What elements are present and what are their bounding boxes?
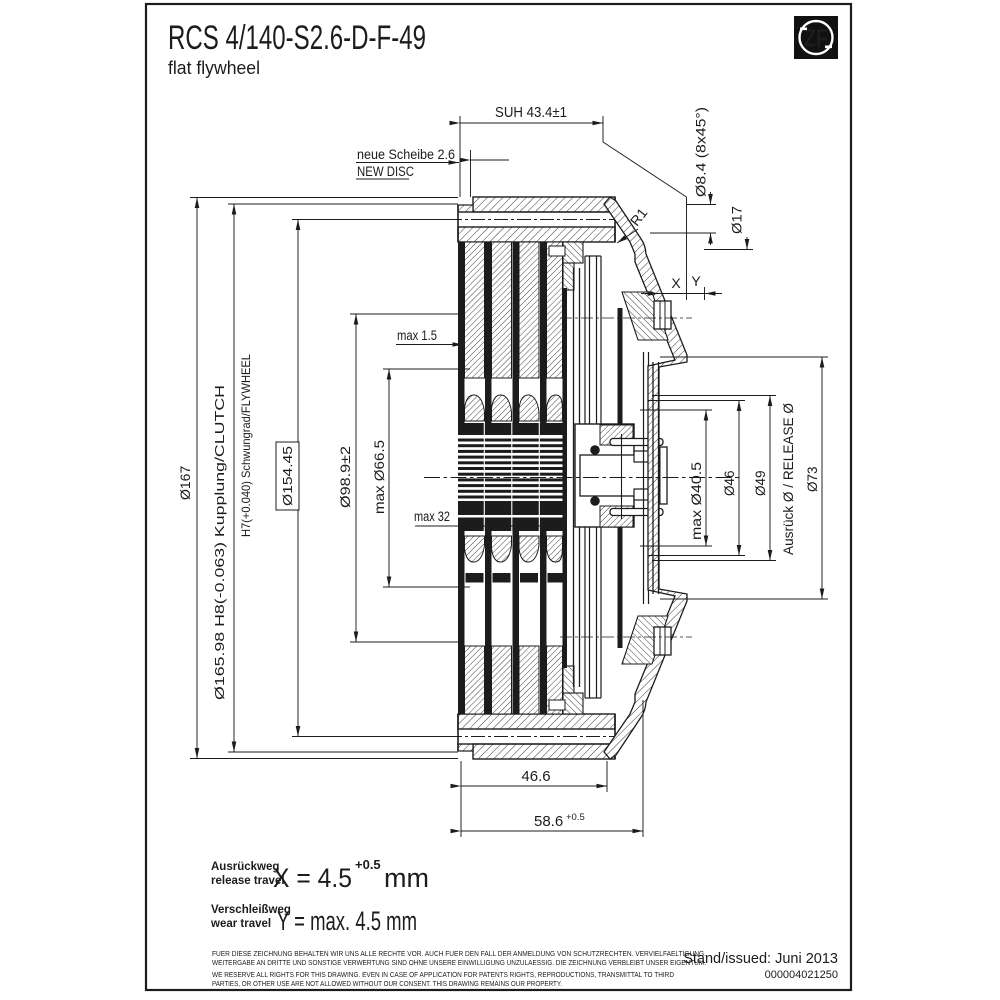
svg-text:X = 4.5: X = 4.5 <box>273 863 352 893</box>
svg-text:SUH 43.4±1: SUH 43.4±1 <box>495 105 567 121</box>
svg-text:Y: Y <box>691 273 701 289</box>
svg-text:flat flywheel: flat flywheel <box>168 58 260 78</box>
svg-text:+0.5: +0.5 <box>566 812 585 823</box>
svg-text:58.6: 58.6 <box>534 813 563 830</box>
svg-text:max 1.5: max 1.5 <box>397 328 437 343</box>
svg-text:WE RESERVE ALL RIGHTS FOR THIS: WE RESERVE ALL RIGHTS FOR THIS DRAWING. … <box>212 970 674 979</box>
svg-text:ZF: ZF <box>804 25 828 53</box>
svg-text:Ø17: Ø17 <box>729 206 745 234</box>
svg-text:FUER DIESE ZEICHNUNG BEHALTEN: FUER DIESE ZEICHNUNG BEHALTEN WIR UNS AL… <box>212 949 706 958</box>
svg-text:PARTIES, OR OTHER USE ARE NOT: PARTIES, OR OTHER USE ARE NOT ALLOWED WI… <box>212 979 562 988</box>
svg-text:Stand/issued: Juni 2013: Stand/issued: Juni 2013 <box>683 951 838 967</box>
svg-text:+0.5: +0.5 <box>355 857 381 872</box>
svg-text:Ø167: Ø167 <box>177 466 193 500</box>
svg-text:WEITERGABE AN DRITTE UND SONST: WEITERGABE AN DRITTE UND SONSTIGE VERWER… <box>212 958 706 967</box>
svg-text:wear travel: wear travel <box>210 918 271 930</box>
svg-text:Ø73: Ø73 <box>805 466 820 492</box>
svg-text:RCS 4/140-S2.6-D-F-49: RCS 4/140-S2.6-D-F-49 <box>168 19 426 57</box>
svg-text:Ø98.9±2: Ø98.9±2 <box>338 446 353 508</box>
svg-text:X: X <box>671 275 681 291</box>
svg-text:Ausrückweg: Ausrückweg <box>211 861 279 873</box>
svg-text:Ausrück Ø / RELEASE Ø: Ausrück Ø / RELEASE Ø <box>781 403 796 555</box>
svg-text:46.6: 46.6 <box>521 768 550 785</box>
svg-text:Ø8.4 (8x45°): Ø8.4 (8x45°) <box>693 107 709 197</box>
svg-text:max Ø40.5: max Ø40.5 <box>689 462 704 540</box>
svg-text:mm: mm <box>384 863 429 893</box>
svg-text:neue Scheibe 2.6: neue Scheibe 2.6 <box>357 147 455 162</box>
svg-text:Ø165.98 H8(-0.063) Kupplung/C: Ø165.98 H8(-0.063) Kupplung/CLUTCH <box>213 385 227 700</box>
svg-text:000004021250: 000004021250 <box>765 969 838 981</box>
svg-text:max Ø66.5: max Ø66.5 <box>372 440 387 514</box>
svg-text:Ø154.45: Ø154.45 <box>280 446 295 506</box>
svg-text:NEW DISC: NEW DISC <box>357 164 414 179</box>
svg-text:H7(+0.040) Schwungrad/FLYWHEE: H7(+0.040) Schwungrad/FLYWHEEL <box>239 354 253 537</box>
svg-text:Y = max. 4.5 mm: Y = max. 4.5 mm <box>277 906 417 936</box>
svg-text:Ø49: Ø49 <box>753 470 768 496</box>
svg-text:Ø46: Ø46 <box>722 470 737 496</box>
svg-text:max 32: max 32 <box>414 509 450 524</box>
